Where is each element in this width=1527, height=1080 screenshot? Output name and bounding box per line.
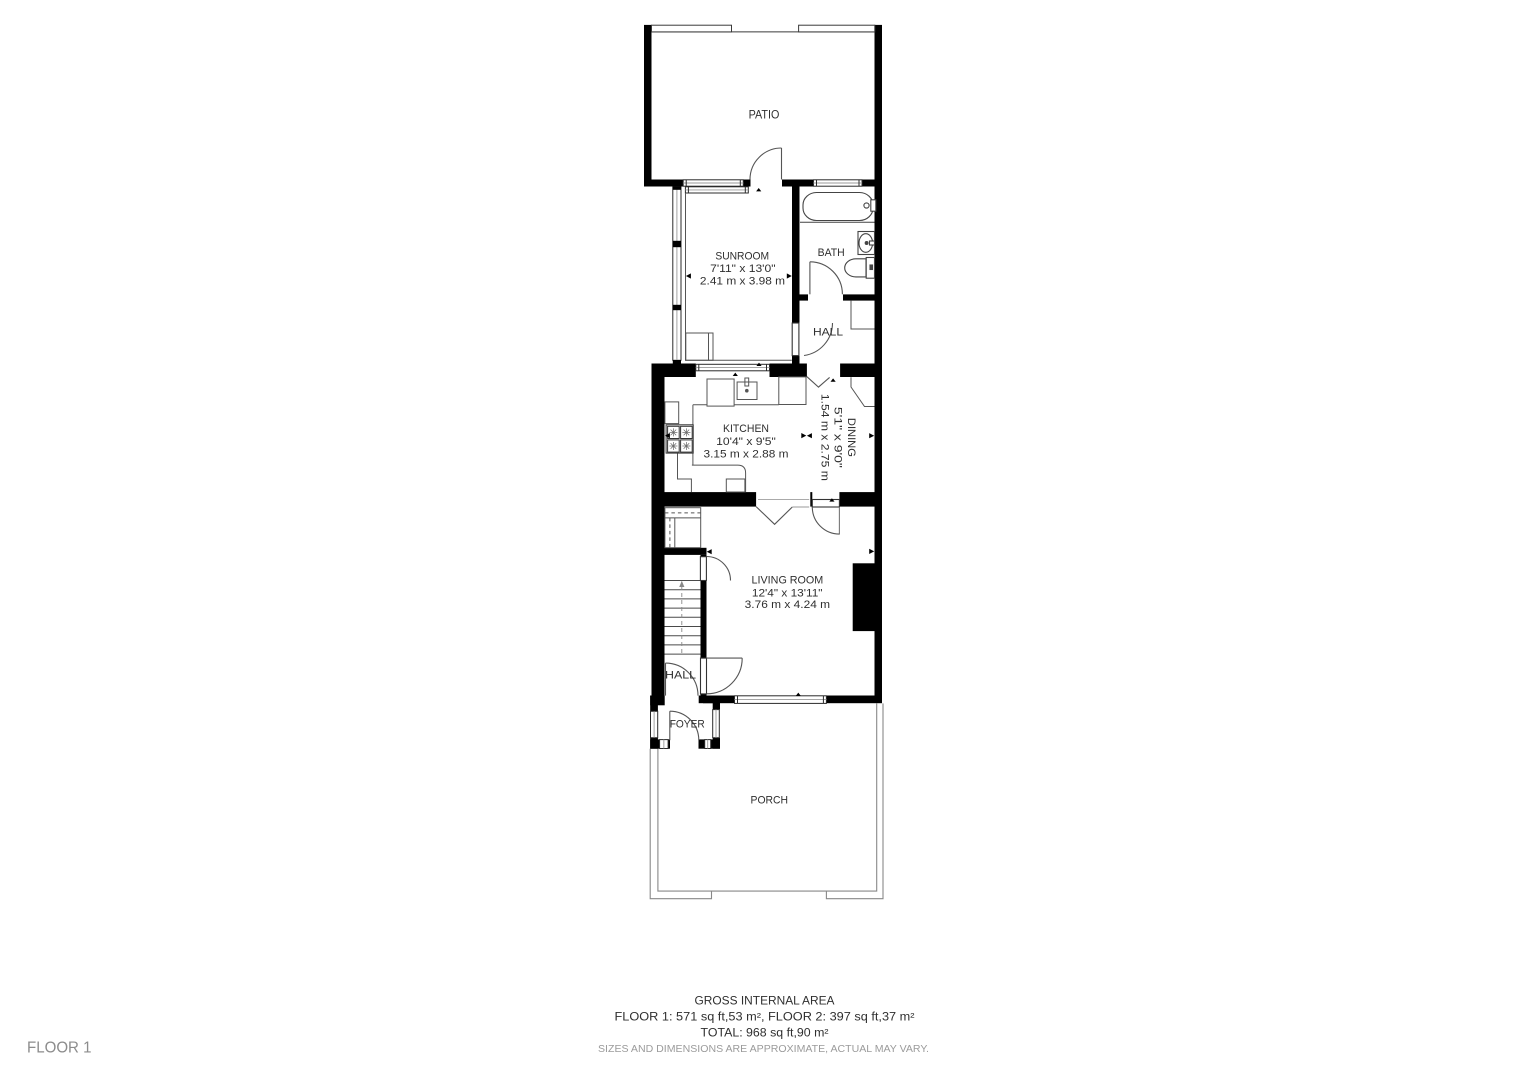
svg-text:BATH: BATH <box>818 247 845 259</box>
svg-text:HALL: HALL <box>813 327 843 339</box>
svg-text:FLOOR 1: FLOOR 1 <box>27 1040 92 1057</box>
svg-text:1.54 m x 2.75 m: 1.54 m x 2.75 m <box>819 394 831 481</box>
svg-text:3.76 m x 4.24 m: 3.76 m x 4.24 m <box>745 599 830 611</box>
svg-text:LIVING ROOM: LIVING ROOM <box>752 575 824 587</box>
svg-text:TOTAL: 968 sq ft,90 m²: TOTAL: 968 sq ft,90 m² <box>701 1028 829 1040</box>
svg-text:FOYER: FOYER <box>670 718 705 730</box>
svg-text:12'4" x 13'11": 12'4" x 13'11" <box>752 587 823 599</box>
svg-text:GROSS INTERNAL AREA: GROSS INTERNAL AREA <box>695 996 835 1008</box>
svg-text:10'4" x 9'5": 10'4" x 9'5" <box>716 436 776 448</box>
svg-text:PORCH: PORCH <box>751 795 789 807</box>
svg-text:3.15 m x 2.88 m: 3.15 m x 2.88 m <box>704 448 789 460</box>
svg-text:FLOOR 1: 571 sq ft,53 m², FLOO: FLOOR 1: 571 sq ft,53 m², FLOOR 2: 397 s… <box>615 1012 915 1024</box>
svg-text:7'11" x 13'0": 7'11" x 13'0" <box>710 263 775 275</box>
svg-text:DINING: DINING <box>845 418 857 457</box>
svg-text:5'1" x 9'0": 5'1" x 9'0" <box>831 407 843 468</box>
svg-text:KITCHEN: KITCHEN <box>723 423 769 435</box>
svg-text:HALL: HALL <box>665 670 696 682</box>
svg-text:2.41 m x 3.98 m: 2.41 m x 3.98 m <box>700 276 785 288</box>
svg-text:PATIO: PATIO <box>749 108 780 121</box>
svg-text:SIZES AND DIMENSIONS ARE APPRO: SIZES AND DIMENSIONS ARE APPROXIMATE, AC… <box>598 1044 929 1055</box>
svg-text:SUNROOM: SUNROOM <box>715 251 769 263</box>
